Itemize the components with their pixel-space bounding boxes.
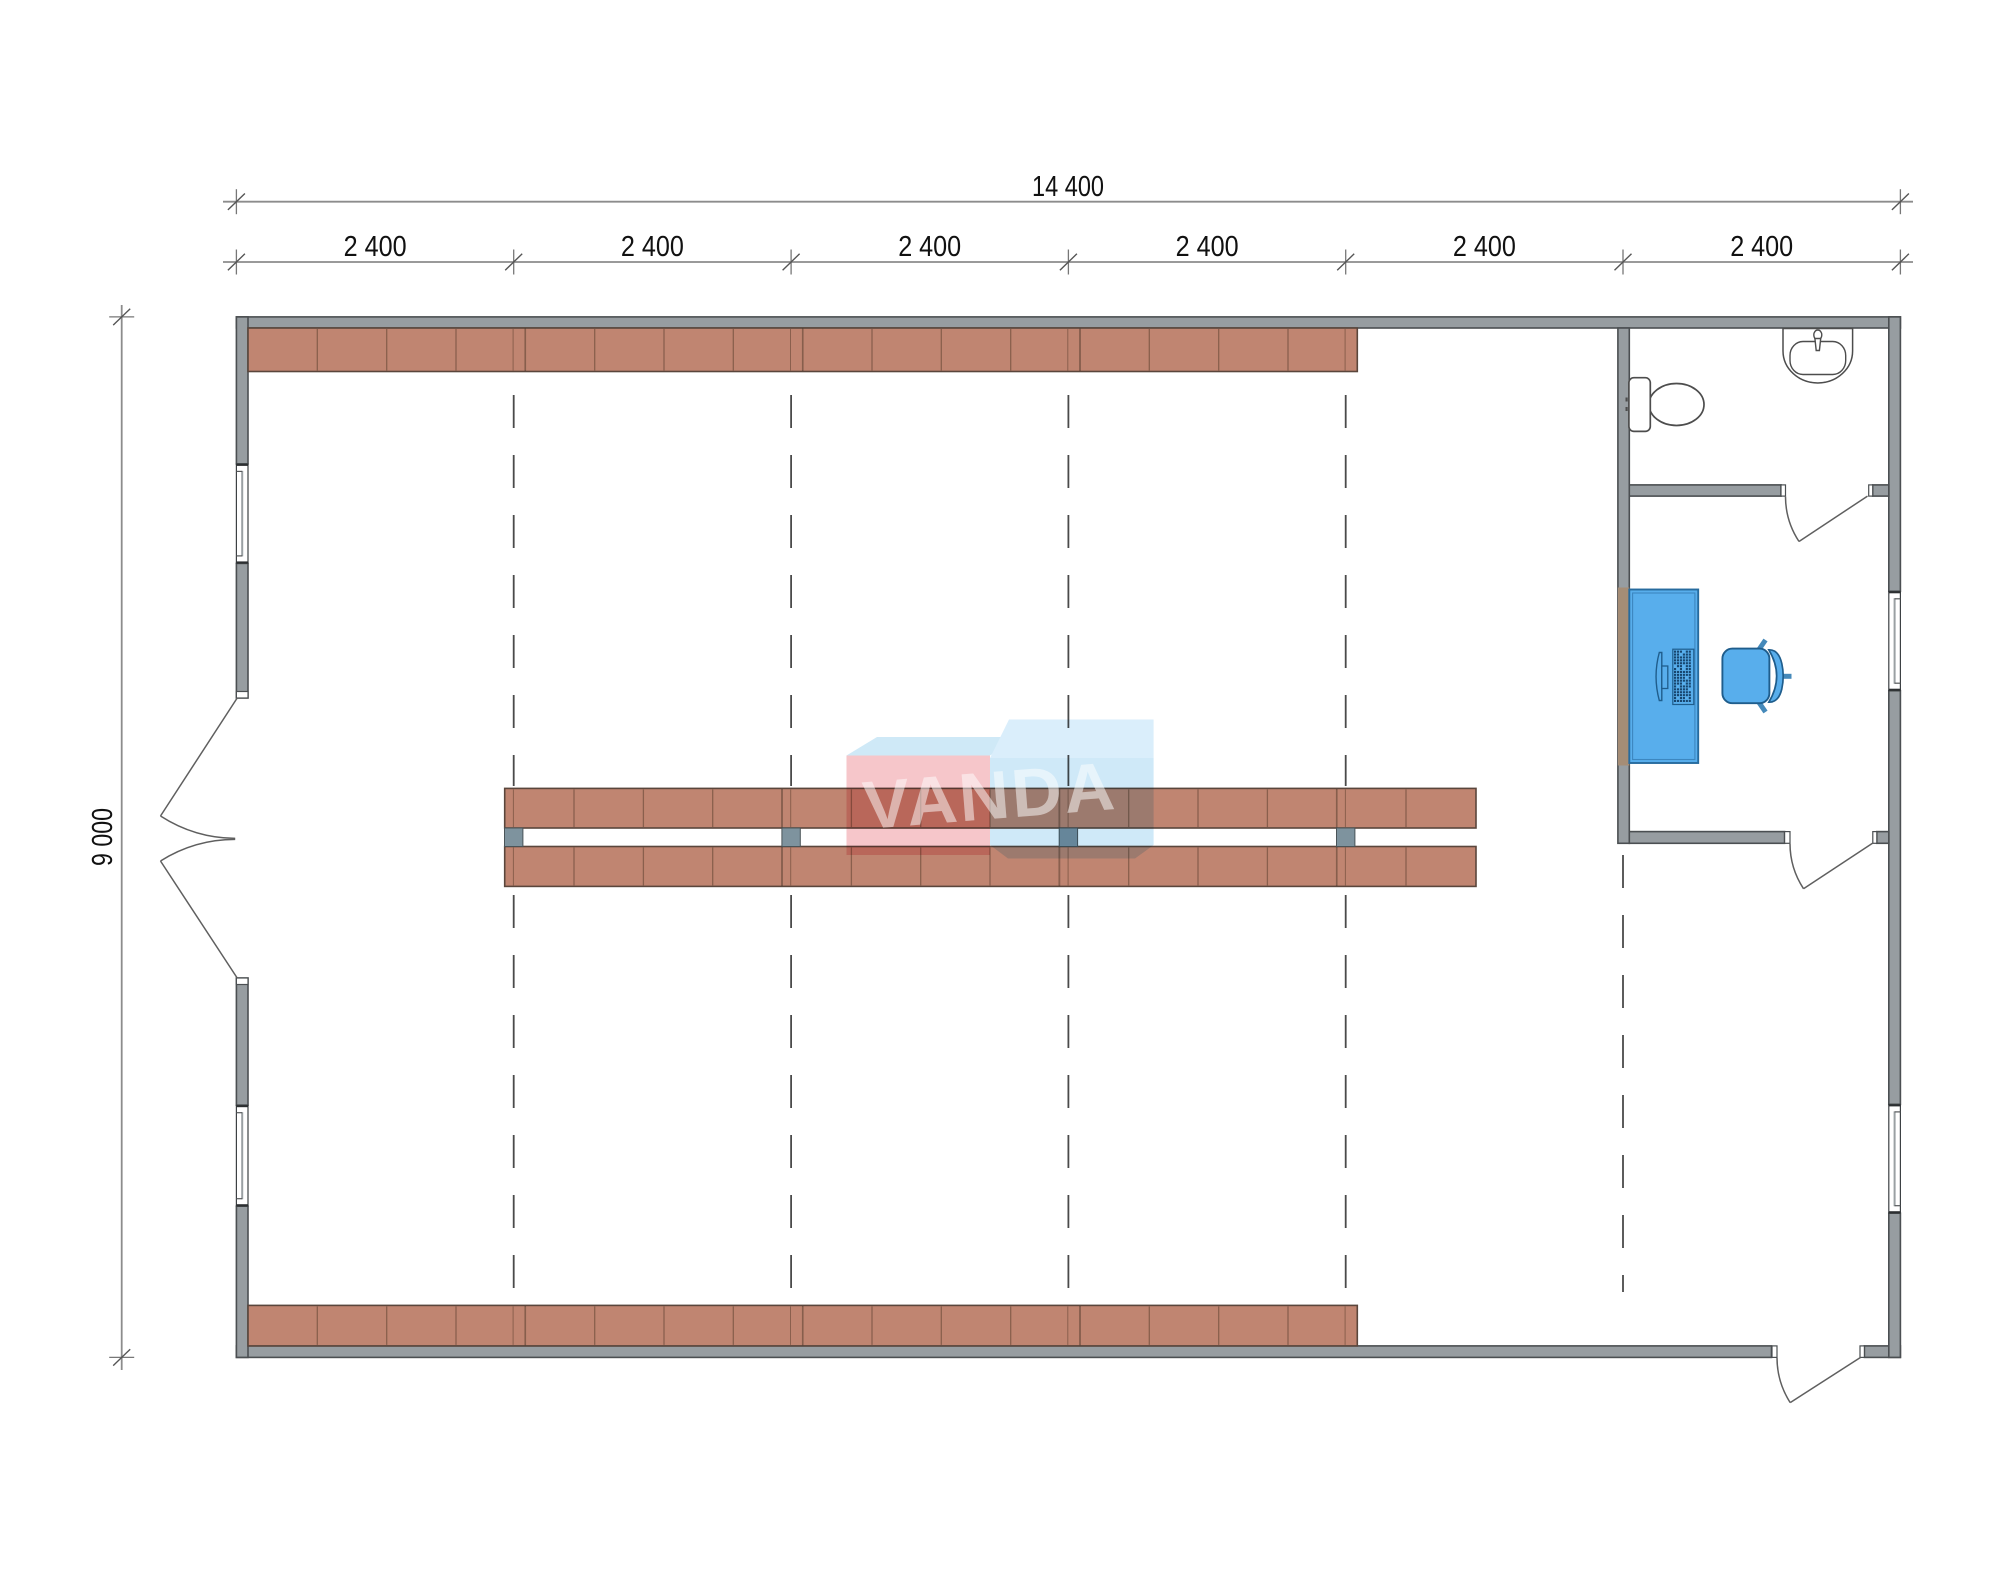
svg-text:2 400: 2 400 [1176,231,1239,263]
svg-text:2 400: 2 400 [1730,231,1793,263]
svg-text:14 400: 14 400 [1032,171,1104,203]
svg-text:2 400: 2 400 [344,231,407,263]
svg-text:2 400: 2 400 [1453,231,1516,263]
svg-text:2 400: 2 400 [621,231,684,263]
svg-text:2 400: 2 400 [898,231,961,263]
svg-text:9 000: 9 000 [87,808,119,866]
